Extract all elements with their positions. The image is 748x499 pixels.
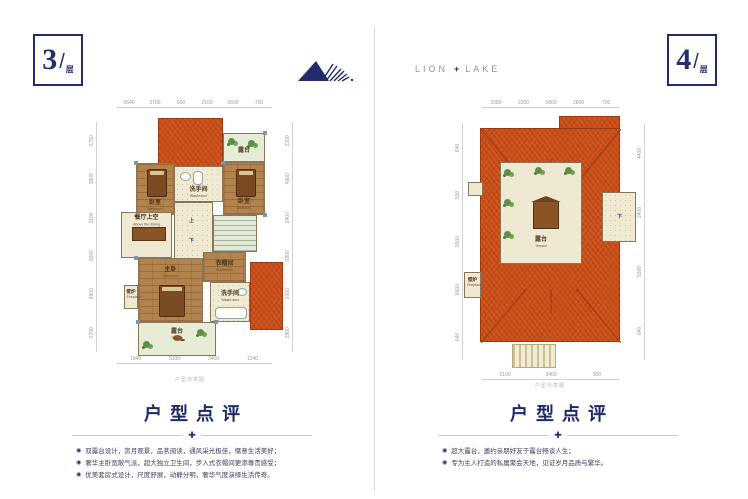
- room-bedroom-left: 卧室 Bedroom: [136, 163, 174, 215]
- room-dining-void: 餐厅上空 Above the dining room: [121, 212, 172, 258]
- dimension-label: 4900: [284, 160, 292, 198]
- floor-unit-label: 层: [700, 64, 708, 75]
- bullet-icon: ◉: [442, 447, 447, 456]
- dimension-col-left: 275038001100360048002700: [88, 122, 97, 352]
- wall-corner: [134, 161, 138, 165]
- badge-slash: /: [59, 51, 65, 74]
- dimension-label: 900: [574, 372, 620, 379]
- dimension-label: 2400: [636, 183, 644, 242]
- wall-corner: [134, 256, 138, 260]
- review-text: 超大露台，邀约亲朋好友于露台畅谈人生；: [451, 447, 575, 456]
- room-washroom-top: 洗手间 Washroom: [174, 166, 223, 202]
- bed-icon: [236, 169, 256, 197]
- dimension-label: 3400: [528, 372, 574, 379]
- plan-note: 户型示意图: [86, 376, 294, 383]
- bullet-icon: ◉: [76, 459, 81, 468]
- dimension-label: 5300: [636, 242, 644, 301]
- review-text: 奢华主卧宽敞气派，超大独立卫生间，步入式衣帽间更添尊贵感受；: [85, 459, 280, 468]
- separator-line: [567, 435, 678, 436]
- dimension-label: 500: [454, 171, 462, 218]
- pergola-icon: [512, 344, 556, 368]
- review-title: 户型点评: [62, 400, 322, 426]
- dimension-label: 2000: [284, 275, 292, 313]
- fireplace-nook: 壁炉 Fireplace: [464, 272, 481, 298]
- dimension-label: 1240: [233, 356, 272, 363]
- dimension-label: 3600: [220, 100, 246, 107]
- brand-wordmark: LION + LAKE: [415, 64, 500, 74]
- room-label: 洗手间 Washroom: [211, 291, 249, 303]
- dimension-col-right: 440024005300640: [636, 124, 645, 360]
- bed-icon: [159, 285, 185, 317]
- room-label: 衣帽间 Cloakroom: [204, 261, 245, 273]
- dimension-label: 5800: [537, 100, 565, 107]
- floor-badge-4f: 4 / 层: [667, 34, 717, 86]
- dimension-label: 640: [454, 313, 462, 360]
- toilet-icon: [193, 171, 203, 185]
- plant-icon: [535, 167, 542, 174]
- dimension-label: 6600: [454, 266, 462, 313]
- separator-line: [438, 435, 549, 436]
- dimension-label: 3300: [482, 100, 510, 107]
- wall-corner: [221, 161, 225, 165]
- room-label: 露台 Terrace: [139, 329, 215, 341]
- room-bedroom-right: 卧室 Bedroom: [223, 162, 265, 215]
- dimension-label: 2400: [284, 199, 292, 237]
- plus-icon: ✚: [183, 431, 201, 440]
- dimension-label: 4400: [636, 124, 644, 183]
- room-master-bedroom: 主卧 Bedroom: [138, 258, 203, 322]
- separator-line: [72, 435, 183, 436]
- plant-icon: [504, 169, 511, 176]
- sink-icon: [180, 172, 191, 181]
- bullet-icon: ◉: [442, 459, 447, 468]
- wall-corner: [263, 213, 267, 217]
- dimension-label: 2800: [565, 100, 593, 107]
- dimension-label: 3400: [194, 356, 233, 363]
- plant-icon: [248, 140, 255, 147]
- dimension-label: 1940: [116, 356, 155, 363]
- room-cloakroom: 衣帽间 Cloakroom: [203, 252, 246, 282]
- dimension-row-top: 5640270060021003600700: [116, 100, 272, 108]
- wall-corner: [263, 131, 267, 135]
- dimension-label: 2750: [88, 122, 96, 160]
- plus-icon: +: [454, 64, 459, 74]
- dimension-label: 5100: [482, 372, 528, 379]
- room-label: 壁炉 Fireplace: [465, 278, 480, 288]
- review-separator: ✚: [438, 431, 678, 440]
- dimension-label: 3900: [454, 218, 462, 265]
- dimension-label: 4800: [88, 275, 96, 313]
- review-item: ◉ 专为主人打造的私属聚会天地，见证岁月品质与繁华。: [442, 459, 688, 468]
- wall-corner: [136, 320, 140, 324]
- dimension-label: 2900: [284, 314, 292, 352]
- room-bathroom: 洗手间 Washroom: [210, 282, 250, 322]
- dimension-label: 2800: [284, 237, 292, 275]
- floor-badge-3f: 3 / 层: [33, 34, 83, 86]
- floor-number: 4: [676, 45, 691, 75]
- review-separator: ✚: [72, 431, 312, 440]
- brand-word: LION: [415, 64, 448, 74]
- stairs-down-label: 下: [189, 237, 194, 244]
- dimension-label: 5640: [116, 100, 142, 107]
- review-list: ◉ 超大露台，邀约亲朋好友于露台畅谈人生； ◉ 专为主人打造的私属聚会天地，见证…: [428, 447, 688, 468]
- review-section-3f: 户型点评 ✚ ◉ 双露台设计，赏月观景，品茗阅读，通风采光极佳，惬意生活美好； …: [62, 400, 322, 483]
- dimension-label: 2700: [88, 314, 96, 352]
- room-label: 卧室 Bedroom: [137, 200, 173, 212]
- dimension-label: 2200: [510, 100, 538, 107]
- room-stairwell: 下: [602, 192, 636, 242]
- review-item: ◉ 奢华主卧宽敞气派，超大独立卫生间，步入式衣帽间更添尊贵感受；: [76, 459, 322, 468]
- dimension-label: 5100: [155, 356, 194, 363]
- fireplace-nook: 壁炉 Fireplace: [124, 285, 138, 309]
- dimension-label: 2700: [142, 100, 168, 107]
- floorplan-3f: 5640270060021003600700 1940510034001240 …: [86, 100, 294, 392]
- plus-icon: ✚: [549, 431, 567, 440]
- pavilion-icon: [533, 201, 559, 229]
- roof-section-top: [158, 118, 223, 168]
- plant-icon: [143, 341, 150, 348]
- room-label: 主卧 Bedroom: [139, 267, 202, 279]
- separator-line: [201, 435, 312, 436]
- dimension-row-top: 3300220058002800700: [482, 100, 620, 108]
- room-label: 露台: [224, 148, 264, 155]
- room-terrace-top: 露台: [223, 133, 265, 162]
- dimension-col-right: 220049002400280020002900: [284, 122, 293, 352]
- floorplan-4f: 3300220058002800700 51003400900 64050039…: [452, 100, 648, 392]
- floor-number: 3: [42, 45, 57, 75]
- dimension-label: 600: [168, 100, 194, 107]
- center-divider: [374, 26, 375, 491]
- room-label: 餐厅上空 Above the dining room: [122, 215, 171, 233]
- stairs-down-label: 下: [617, 213, 622, 220]
- floor-unit-label: 层: [66, 64, 74, 75]
- bay-box: [468, 182, 483, 196]
- room-terrace: 露台 Terrace: [500, 162, 582, 264]
- roof-section-bottom-right: [250, 262, 283, 330]
- plan-note: 户型示意图: [452, 382, 648, 389]
- plant-icon: [504, 199, 511, 206]
- bed-icon: [147, 169, 167, 197]
- dimension-label: 3600: [88, 237, 96, 275]
- dimension-label: 640: [454, 124, 462, 171]
- wall-corner: [214, 320, 218, 324]
- badge-slash: /: [693, 51, 699, 74]
- room-label: 卧室 Bedroom: [224, 199, 264, 211]
- bullet-icon: ◉: [76, 447, 81, 456]
- review-title: 户型点评: [428, 400, 688, 426]
- review-item: ◉ 优美套房式设计，尺度舒展，动静分明，奢华气度演绎生活传奇。: [76, 471, 322, 480]
- room-label: 洗手间 Washroom: [175, 187, 222, 199]
- review-section-4f: 户型点评 ✚ ◉ 超大露台，邀约亲朋好友于露台畅谈人生； ◉ 专为主人打造的私属…: [428, 400, 688, 471]
- bathtub-icon: [215, 307, 247, 319]
- review-item: ◉ 双露台设计，赏月观景，品茗阅读，通风采光极佳，惬意生活美好；: [76, 447, 322, 456]
- room-label: 壁炉 Fireplace: [125, 290, 137, 300]
- brand-word: LAKE: [465, 64, 500, 74]
- dimension-row-bottom: 51003400900: [482, 372, 620, 380]
- plant-icon: [565, 167, 572, 174]
- dimension-label: 3800: [88, 160, 96, 198]
- review-item: ◉ 超大露台，邀约亲朋好友于露台畅谈人生；: [442, 447, 688, 456]
- review-list: ◉ 双露台设计，赏月观景，品茗阅读，通风采光极佳，惬意生活美好； ◉ 奢华主卧宽…: [62, 447, 322, 480]
- dimension-col-left: 64050039006600640: [454, 124, 463, 360]
- dimension-label: 1100: [88, 199, 96, 237]
- stairs-up-label: 上: [189, 217, 194, 224]
- dimension-label: 700: [592, 100, 620, 107]
- bullet-icon: ◉: [76, 471, 81, 480]
- dimension-label: 2200: [284, 122, 292, 160]
- review-text: 双露台设计，赏月观景，品茗阅读，通风采光极佳，惬意生活美好；: [85, 447, 280, 456]
- review-text: 专为主人打造的私属聚会天地，见证岁月品质与繁华。: [451, 459, 607, 468]
- dimension-label: 2100: [194, 100, 220, 107]
- room-label: 露台 Terrace: [501, 237, 581, 249]
- mountain-logo-icon: [296, 56, 354, 83]
- stairs-area: [213, 215, 257, 252]
- review-text: 优美套房式设计，尺度舒展，动静分明，奢华气度演绎生活传奇。: [85, 471, 274, 480]
- dimension-label: 700: [246, 100, 272, 107]
- page: { "badges": { "left": {"num": "3", "slas…: [0, 0, 748, 499]
- room-terrace-bottom: 露台 Terrace: [138, 322, 216, 356]
- dimension-row-bottom: 1940510034001240: [116, 356, 272, 364]
- dimension-label: 640: [636, 301, 644, 360]
- plant-icon: [228, 138, 235, 145]
